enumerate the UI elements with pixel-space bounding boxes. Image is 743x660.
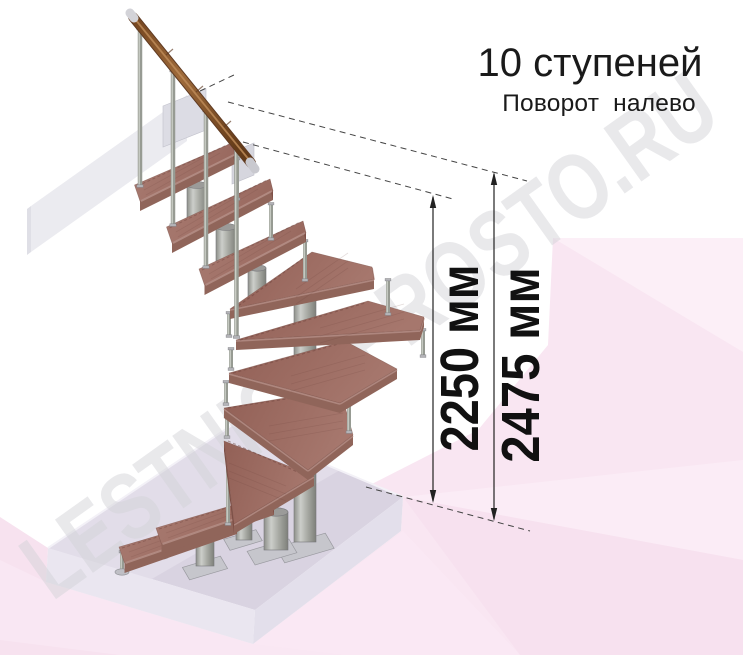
svg-text:10 ступеней: 10 ступеней bbox=[478, 41, 703, 85]
svg-text:2475 мм: 2475 мм bbox=[490, 267, 551, 463]
svg-text:2250 мм: 2250 мм bbox=[429, 264, 490, 451]
svg-text:Поворот налево: Поворот налево bbox=[502, 90, 696, 117]
